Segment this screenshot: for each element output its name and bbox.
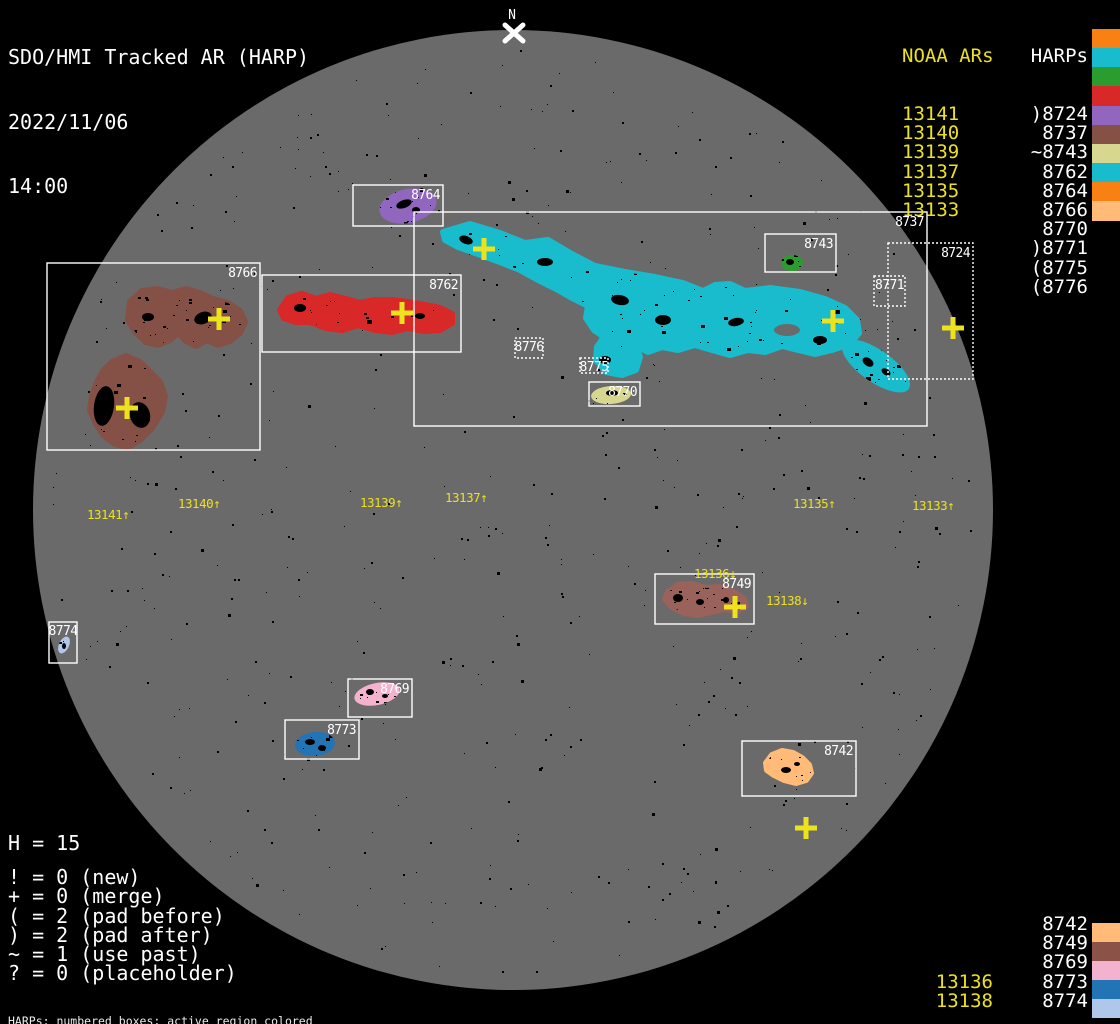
blob-speckle	[110, 389, 111, 390]
noise-speckle	[715, 848, 718, 851]
blob-speckle	[617, 302, 618, 303]
noise-speckle	[388, 115, 389, 116]
noise-speckle	[673, 646, 674, 647]
noise-speckle	[468, 193, 469, 194]
noise-speckle	[758, 248, 759, 249]
noise-speckle	[628, 869, 629, 870]
noise-speckle	[186, 623, 188, 625]
noise-speckle	[154, 553, 156, 555]
noise-speckle	[934, 456, 936, 458]
blob-speckle	[407, 221, 409, 222]
noise-speckle	[53, 504, 54, 505]
harp-tracker-screen: 8766876487628737874387708749877487698773…	[0, 0, 1120, 1024]
noise-speckle	[560, 150, 562, 152]
noise-speckle	[725, 708, 726, 709]
blob-speckle	[751, 326, 752, 327]
noise-speckle	[870, 672, 871, 673]
noise-speckle	[515, 734, 516, 735]
noise-speckle	[308, 405, 311, 408]
harp-color-chip-8775	[1092, 182, 1120, 201]
noise-speckle	[386, 103, 388, 105]
noise-speckle	[238, 579, 240, 581]
noise-speckle	[416, 872, 417, 873]
noise-speckle	[807, 487, 810, 490]
harp-box-label-8771: 8771	[875, 278, 904, 293]
noise-speckle	[228, 614, 231, 617]
blob-speckle	[799, 266, 801, 267]
noise-speckle	[339, 706, 340, 707]
harp-color-chip-8766	[1092, 125, 1120, 144]
noise-speckle	[717, 545, 719, 547]
noise-speckle	[116, 282, 117, 283]
blob-dark-patch	[786, 259, 794, 265]
noise-speckle	[917, 566, 919, 568]
noise-speckle	[566, 190, 569, 193]
noise-speckle	[551, 493, 553, 495]
noise-speckle	[311, 114, 312, 115]
noise-speckle	[678, 126, 679, 127]
blob-speckle	[186, 319, 189, 321]
noise-speckle	[90, 646, 91, 647]
noise-speckle	[622, 122, 624, 124]
noise-speckle	[952, 478, 953, 479]
noise-speckle	[897, 338, 899, 340]
noaa-cross-v	[804, 817, 809, 839]
noise-speckle	[621, 182, 622, 183]
blob-speckle	[101, 429, 102, 430]
noise-speckle	[450, 658, 452, 660]
noise-speckle	[179, 757, 180, 758]
blob-speckle	[339, 313, 340, 314]
harp-box-label-8762: 8762	[429, 278, 458, 293]
noaa-ar-legend-title: NOAA ARs	[902, 47, 994, 66]
harp-box-label-8742: 8742	[824, 744, 853, 759]
harp-count-line: H = 15	[8, 831, 80, 855]
blob-speckle	[223, 310, 227, 313]
noise-speckle	[376, 155, 378, 157]
noise-speckle	[639, 153, 641, 155]
noise-speckle	[254, 459, 256, 461]
noise-speckle	[299, 276, 301, 278]
blob-speckle	[607, 403, 608, 404]
harp-color-chips	[1092, 29, 1120, 221]
harp-color-chip-8774	[1092, 999, 1120, 1018]
noise-speckle	[155, 483, 158, 486]
noise-speckle	[798, 743, 801, 746]
noise-speckle	[495, 767, 496, 768]
noise-speckle	[743, 496, 744, 497]
harp-box-label-8766: 8766	[228, 266, 257, 281]
noise-speckle	[283, 890, 284, 891]
noise-speckle	[366, 154, 368, 156]
noise-speckle	[131, 511, 133, 513]
noise-speckle	[248, 695, 249, 696]
noise-speckle	[541, 767, 543, 769]
noise-speckle	[223, 480, 224, 481]
harp-box-label-8770: 8770	[608, 385, 637, 400]
blob-speckle	[303, 298, 306, 300]
noise-speckle	[174, 716, 175, 717]
blob-speckle	[376, 701, 379, 703]
noise-speckle	[644, 605, 645, 606]
blob-speckle	[411, 221, 412, 222]
noise-speckle	[628, 566, 629, 567]
noise-speckle	[189, 708, 190, 709]
noise-speckle	[121, 548, 123, 550]
noise-speckle	[606, 432, 608, 434]
noise-speckle	[503, 616, 504, 617]
noise-speckle	[269, 420, 270, 421]
noise-speckle	[846, 830, 847, 831]
blob-speckle	[390, 207, 392, 208]
noise-speckle	[483, 279, 485, 281]
blob-speckle	[209, 325, 211, 326]
noise-speckle	[362, 330, 363, 331]
noise-speckle	[286, 467, 287, 468]
noise-speckle	[675, 152, 677, 154]
noise-speckle	[606, 162, 607, 163]
blob-speckle	[612, 295, 613, 296]
noise-speckle	[711, 194, 712, 195]
blob-speckle	[662, 331, 666, 334]
noise-speckle	[899, 754, 900, 755]
noise-speckle	[602, 435, 604, 437]
noise-speckle	[846, 528, 848, 530]
noise-speckle	[461, 538, 463, 540]
noise-speckle	[338, 171, 339, 172]
blob-dark-patch	[62, 643, 66, 649]
blob-speckle	[155, 334, 156, 335]
blob-speckle	[701, 325, 705, 328]
noise-speckle	[517, 328, 519, 330]
blob-speckle	[612, 331, 613, 332]
noise-speckle	[417, 83, 418, 84]
blob-speckle	[416, 213, 417, 214]
noise-speckle	[598, 876, 600, 878]
noise-speckle	[693, 891, 694, 892]
noise-speckle	[756, 284, 757, 285]
noise-speckle	[97, 641, 98, 642]
blob-speckle	[817, 342, 821, 345]
noise-speckle	[559, 73, 560, 74]
noise-speckle	[516, 635, 518, 637]
noise-speckle	[569, 707, 570, 708]
blob-speckle	[360, 698, 361, 699]
blob-speckle	[208, 327, 209, 328]
noaa-cross-v	[217, 308, 222, 330]
blob-speckle	[368, 693, 371, 695]
noise-speckle	[869, 455, 871, 457]
blob-speckle	[821, 320, 822, 321]
noise-speckle	[292, 538, 294, 540]
harp-box-label-8776: 8776	[515, 340, 544, 355]
noise-speckle	[385, 946, 386, 947]
blob-speckle	[360, 694, 363, 696]
noise-speckle	[272, 280, 274, 282]
noise-speckle	[717, 911, 720, 914]
noise-speckle	[718, 539, 721, 542]
blob-speckle	[703, 588, 704, 589]
noise-speckle	[481, 684, 482, 685]
noise-speckle	[837, 218, 838, 219]
harp-color-chip-8771	[1092, 163, 1120, 182]
noaa-label-13141: 13141↑	[87, 507, 129, 522]
noise-speckle	[646, 160, 647, 161]
blob-speckle	[630, 280, 631, 281]
noise-speckle	[147, 483, 149, 485]
harp-color-chips-bottom	[1092, 923, 1120, 1019]
noise-speckle	[502, 533, 503, 534]
noise-speckle	[533, 484, 535, 486]
noise-speckle	[741, 449, 743, 451]
blob-speckle	[586, 271, 589, 273]
noise-speckle	[220, 290, 221, 291]
noise-speckle	[663, 480, 664, 481]
harp-box-label-8773: 8773	[327, 723, 356, 738]
blob-speckle	[738, 346, 739, 347]
noise-speckle	[310, 176, 311, 177]
blob-speckle	[596, 398, 597, 399]
blob-dark-patch	[142, 313, 154, 321]
noise-speckle	[232, 524, 234, 526]
noise-speckle	[432, 243, 434, 245]
blob-speckle	[117, 384, 121, 387]
harp-color-chip-8737	[1092, 48, 1120, 67]
noise-speckle	[704, 682, 705, 683]
noise-speckle	[723, 507, 724, 508]
harp-color-chip-8770	[1092, 144, 1120, 163]
blob-speckle	[367, 320, 372, 324]
noise-speckle	[856, 531, 858, 533]
noise-speckle	[434, 558, 435, 559]
noise-speckle	[331, 682, 332, 683]
noise-speckle	[492, 661, 494, 663]
noise-speckle	[381, 948, 383, 950]
noise-speckle	[425, 69, 426, 70]
noise-speckle	[490, 865, 491, 866]
blob-speckle	[96, 385, 97, 386]
noise-speckle	[805, 405, 806, 406]
noise-speckle	[234, 579, 236, 581]
noise-speckle	[371, 562, 373, 564]
blob-speckle	[824, 337, 825, 338]
blob-speckle	[790, 299, 791, 300]
blob-speckle	[146, 299, 149, 301]
blob-speckle	[143, 397, 146, 399]
blob-speckle	[213, 307, 214, 308]
noaa-ar-item: 13138	[923, 992, 993, 1011]
noise-speckle	[170, 787, 172, 789]
blob-speckle	[330, 301, 331, 302]
noise-speckle	[735, 714, 737, 716]
noise-speckle	[785, 800, 787, 802]
noise-speckle	[570, 622, 572, 624]
noise-speckle	[521, 680, 524, 683]
noise-speckle	[380, 354, 382, 356]
noise-speckle	[715, 881, 717, 883]
blob-speckle	[582, 301, 584, 302]
noise-speckle	[171, 639, 172, 640]
noise-speckle	[130, 477, 131, 478]
noise-speckle	[464, 559, 465, 560]
noise-speckle	[593, 554, 594, 555]
noise-speckle	[323, 769, 325, 771]
noise-speckle	[970, 530, 972, 532]
blob-speckle	[230, 316, 231, 317]
harp-item: 8762	[1008, 163, 1088, 182]
noise-speckle	[534, 148, 535, 149]
noise-speckle	[740, 871, 741, 872]
noise-speckle	[902, 454, 904, 456]
blob-speckle	[837, 306, 838, 307]
noise-speckle	[698, 921, 701, 924]
noise-speckle	[500, 106, 501, 107]
harp-item: (8775	[1008, 259, 1088, 278]
blob-speckle	[781, 343, 783, 344]
noise-speckle	[262, 514, 263, 515]
noise-speckle	[654, 781, 656, 783]
noise-speckle	[299, 914, 300, 915]
noise-speckle	[885, 783, 886, 784]
blob-speckle	[297, 308, 298, 309]
blob-speckle	[756, 310, 757, 311]
noise-speckle	[547, 544, 549, 546]
noise-speckle	[657, 457, 658, 458]
noise-speckle	[605, 454, 607, 456]
harp-color-chip-8743	[1092, 67, 1120, 86]
noise-speckle	[934, 648, 935, 649]
footer-captions: HARPs: numbered boxes; active region col…	[8, 991, 410, 1024]
noise-speckle	[769, 427, 771, 429]
noise-speckle	[53, 487, 54, 488]
noise-speckle	[517, 643, 520, 646]
noise-speckle	[350, 491, 351, 492]
harp-legend: HARPs )87248737~87438762876487668770)877…	[1008, 9, 1088, 335]
blob-speckle	[367, 697, 368, 698]
noise-speckle	[513, 416, 515, 418]
noise-speckle	[528, 884, 529, 885]
noise-speckle	[318, 829, 320, 831]
noise-speckle	[800, 658, 802, 660]
blob-speckle	[301, 306, 303, 307]
noise-speckle	[299, 596, 300, 597]
noise-speckle	[565, 231, 566, 232]
blob-speckle	[505, 236, 507, 237]
noise-speckle	[860, 319, 861, 320]
noise-speckle	[841, 828, 842, 829]
noise-speckle	[127, 590, 129, 592]
noise-speckle	[209, 437, 210, 438]
noise-speckle	[272, 740, 274, 742]
noise-speckle	[749, 133, 751, 135]
blob-speckle	[189, 299, 192, 301]
blob-speckle	[311, 312, 312, 313]
blob-speckle	[522, 263, 524, 264]
blob-speckle	[326, 305, 328, 306]
noise-speckle	[480, 527, 481, 528]
noise-speckle	[390, 179, 391, 180]
noise-speckle	[179, 709, 180, 710]
blob-speckle	[644, 310, 645, 311]
noise-speckle	[550, 734, 552, 736]
noise-speckle	[418, 138, 419, 139]
noise-speckle	[323, 152, 324, 153]
noise-speckle	[720, 669, 721, 670]
noise-speckle	[432, 922, 433, 923]
blob-speckle	[749, 333, 751, 334]
noise-speckle	[502, 65, 503, 66]
noise-speckle	[372, 832, 373, 833]
blob-speckle	[640, 314, 641, 315]
noise-speckle	[264, 829, 266, 831]
noise-speckle	[652, 813, 655, 816]
noise-speckle	[111, 590, 113, 592]
noise-speckle	[898, 729, 899, 730]
noise-speckle	[518, 834, 519, 835]
noise-speckle	[628, 921, 630, 923]
harp-color-chip-8776	[1092, 201, 1120, 220]
blob-speckle	[700, 296, 702, 297]
noise-speckle	[595, 62, 596, 63]
noaa-cross-v	[482, 238, 487, 260]
harp-box-label-8769: 8769	[380, 682, 409, 697]
noise-speckle	[731, 677, 733, 679]
noise-speckle	[835, 274, 837, 276]
blob-speckle	[144, 320, 146, 321]
noise-speckle	[345, 691, 346, 692]
noise-speckle	[774, 379, 775, 380]
noise-speckle	[180, 456, 182, 458]
noise-speckle	[579, 616, 580, 617]
noise-speckle	[424, 174, 427, 177]
noise-speckle	[364, 568, 365, 569]
blob-speckle	[696, 592, 699, 594]
noise-speckle	[697, 494, 699, 496]
noise-speckle	[854, 498, 855, 499]
noise-speckle	[914, 329, 916, 331]
noise-speckle	[769, 869, 770, 870]
caption-harps: HARPs: numbered boxes; active region col…	[8, 1015, 410, 1024]
blob-speckle	[135, 441, 136, 442]
blob-speckle	[337, 322, 339, 323]
noise-speckle	[593, 403, 594, 404]
noise-speckle	[747, 637, 748, 638]
noise-speckle	[742, 498, 743, 499]
noise-speckle	[496, 224, 498, 226]
noise-speckle	[383, 723, 384, 724]
noise-speckle	[352, 183, 353, 184]
noise-speckle	[106, 328, 107, 329]
blob-speckle	[193, 341, 194, 342]
harp-box-label-8743: 8743	[804, 237, 833, 252]
noise-speckle	[356, 80, 357, 81]
noise-speckle	[561, 593, 563, 595]
noise-speckle	[116, 643, 119, 646]
noise-speckle	[654, 365, 655, 366]
noise-speckle	[778, 437, 780, 439]
noise-speckle	[548, 205, 549, 206]
noise-speckle	[829, 219, 830, 220]
blob-speckle	[707, 598, 708, 599]
noise-speckle	[431, 902, 432, 903]
noise-speckle	[733, 657, 736, 660]
noise-speckle	[618, 467, 620, 469]
noise-speckle	[772, 870, 773, 871]
blob-speckle	[417, 210, 418, 211]
noise-speckle	[443, 394, 444, 395]
noise-speckle	[665, 268, 666, 269]
blob-speckle	[386, 198, 389, 200]
